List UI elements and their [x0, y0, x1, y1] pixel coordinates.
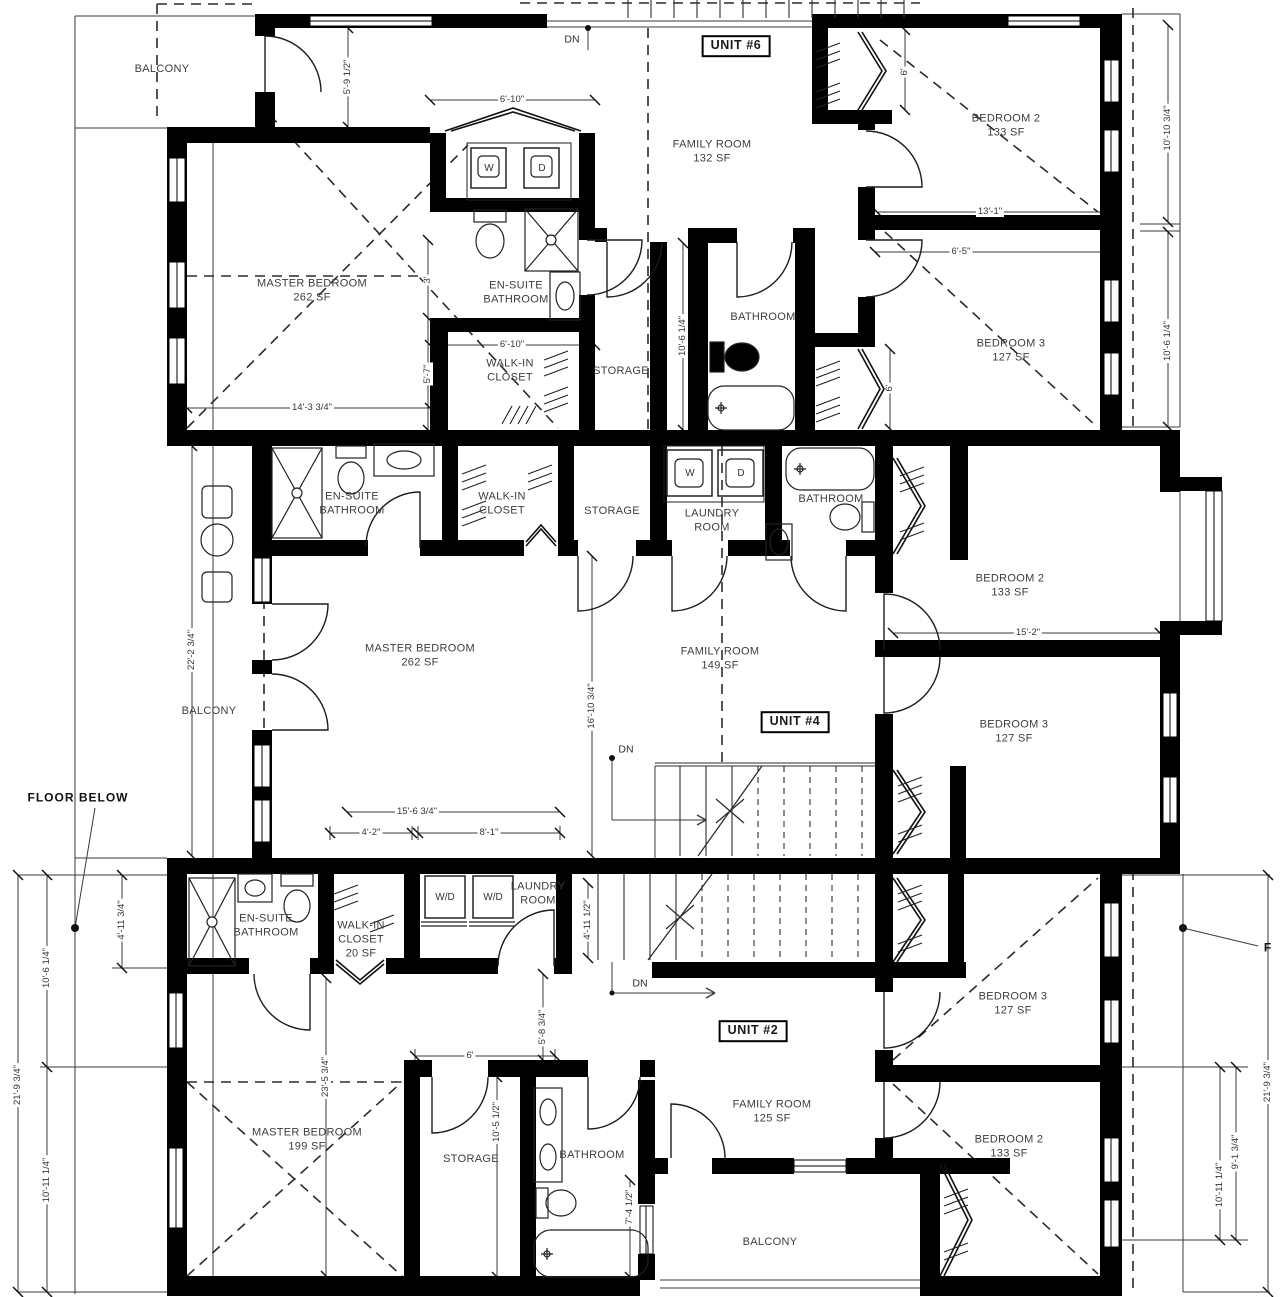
- doors: [254, 36, 940, 1158]
- floor-plan: BALCONYMASTER BEDROOM 262 SFEN-SUITE BAT…: [0, 0, 1280, 1297]
- floor-plan-drawing: [0, 0, 1280, 1297]
- leader-dots: [71, 25, 1187, 996]
- walls: [167, 14, 1222, 1296]
- stairs: [598, 0, 904, 960]
